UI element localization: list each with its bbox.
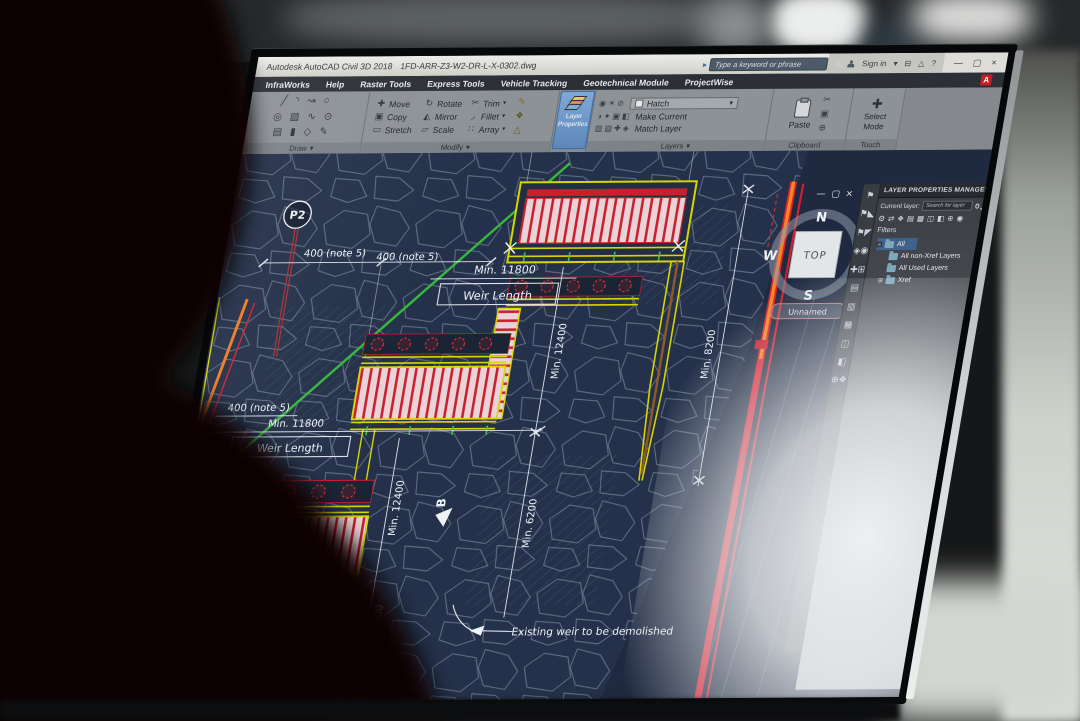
stretch-icon: ▭	[371, 124, 383, 135]
p2-marker-label: P2	[289, 209, 307, 222]
clipboard-panel-caption: Clipboard	[764, 139, 845, 150]
fillet-button[interactable]: ◞Fillet▾	[467, 110, 508, 121]
trim-button[interactable]: ✂Trim▾	[469, 97, 510, 108]
tab-infraworks[interactable]: InfraWorks	[265, 79, 311, 89]
tab-vehicle-tracking[interactable]: Vehicle Tracking	[500, 78, 568, 88]
tab-help[interactable]: Help	[325, 79, 345, 89]
paste-special-icon[interactable]: ⊕	[817, 122, 827, 133]
tab-geotechnical-module[interactable]: Geotechnical Module	[583, 77, 670, 88]
cut-icon[interactable]: ✂	[822, 94, 832, 105]
expand-icon[interactable]: ⊞	[877, 277, 883, 284]
erase-icon[interactable]: ✎	[517, 96, 527, 107]
ribbon: ╱◝↝○◎▨∿⊙▤▮◇✎ Draw▾ ✚Move ▣Copy ▭Stretch …	[242, 87, 1003, 154]
folder-icon	[886, 265, 896, 272]
search-caret-icon: ▸	[702, 60, 708, 69]
copy-icon: ▣	[373, 111, 385, 122]
filters-label: Filters	[872, 225, 979, 237]
monitor-bezel: Autodesk AutoCAD Civil 3D 2018 1FD-ARR-Z…	[140, 43, 1018, 708]
select-mode-button[interactable]: ✚ Select Mode	[851, 96, 900, 132]
photo-of-monitor: Autodesk AutoCAD Civil 3D 2018 1FD-ARR-Z…	[0, 0, 1080, 721]
layer-filter-tree: All All non-Xref Layers All Used Layers …	[864, 236, 978, 287]
folder-icon	[888, 253, 898, 260]
background-light-blob	[912, 0, 1032, 42]
section-b-label: B	[434, 498, 449, 507]
minimize-button[interactable]: —	[953, 58, 964, 68]
background-blob	[285, 0, 725, 44]
caret-down-icon: ▾	[465, 143, 470, 152]
layer-stack-icon	[566, 96, 586, 110]
app-store-icon[interactable]: ⊟	[904, 58, 912, 67]
maximize-button[interactable]: ▢	[972, 57, 982, 68]
select-mode-icon: ✚	[871, 96, 885, 112]
layers-panel: ◉☀⊘ Hatch ▾ ◑✦▣◧ Make Current ▧▨✚◈ Matc	[586, 89, 775, 152]
copy-clip-icon[interactable]: ▣	[819, 108, 829, 119]
tree-item-all[interactable]: All	[876, 238, 918, 250]
layer-tool-icons[interactable]: ▧▨✚◈	[594, 124, 632, 133]
folder-icon	[884, 241, 894, 248]
current-layer-value: Hatch	[646, 98, 670, 108]
autocad-screen: Autodesk AutoCAD Civil 3D 2018 1FD-ARR-Z…	[149, 52, 1009, 701]
dim-weir-length-b: Weir Length	[256, 442, 324, 455]
tree-node-icon	[877, 242, 883, 247]
view-label: Unnamed	[787, 308, 827, 317]
autodesk-icon[interactable]: A	[980, 74, 993, 85]
draw-panel-caption[interactable]: Draw▾	[242, 142, 361, 154]
drawing-window-controls[interactable]: — ▢ ×	[816, 189, 854, 199]
layer-search-input[interactable]	[922, 201, 974, 211]
palette-title: LAYER PROPERTIES MANAGER	[884, 186, 991, 194]
touch-panel-caption: Touch	[844, 139, 897, 150]
tree-item-xref[interactable]: ⊞ Xref	[877, 274, 971, 287]
drawing-minimize-icon: —	[816, 190, 827, 200]
dim-note400-a: 400 (note 5)	[303, 248, 367, 259]
fillet-icon: ◞	[467, 111, 479, 122]
document-name: 1FD-ARR-Z3-W2-DR-L-X-0302.dwg	[400, 60, 538, 71]
caret-down-icon[interactable]: ▾	[502, 99, 506, 106]
caret-down-icon: ▾	[309, 144, 314, 153]
close-button[interactable]: ×	[991, 57, 998, 67]
tab-express-tools[interactable]: Express Tools	[426, 78, 485, 88]
trim-icon: ✂	[469, 98, 481, 109]
dim-note400-c: 400 (note 5)	[227, 403, 291, 414]
layer-dropdown[interactable]: Hatch ▾	[629, 97, 739, 110]
mirror-icon: ◭	[421, 111, 433, 122]
tree-item-used-layers[interactable]: All Used Layers	[886, 262, 973, 275]
user-icon	[848, 60, 856, 67]
search-icon[interactable]	[975, 203, 979, 208]
dim-min11800-b: Min. 11800	[267, 419, 325, 430]
grip-point	[754, 340, 769, 349]
move-button[interactable]: ✚Move	[375, 98, 417, 109]
scale-button[interactable]: ▱Scale	[419, 124, 459, 135]
viewcube-top-label: TOP	[802, 251, 828, 262]
layer-state-icons[interactable]: ◉☀⊘	[598, 99, 626, 108]
mirror-button[interactable]: ◭Mirror	[421, 111, 461, 122]
dim-weir-length-a: Weir Length	[462, 288, 533, 302]
caret-down-icon[interactable]: ▾	[502, 125, 506, 132]
tab-raster-tools[interactable]: Raster Tools	[360, 79, 413, 89]
layer-color-swatch	[634, 99, 643, 107]
stretch-button[interactable]: ▭Stretch	[371, 124, 413, 135]
rotate-icon: ↻	[423, 98, 435, 109]
demolish-note: Existing weir to be demolished	[510, 626, 674, 639]
draw-tool-icons[interactable]: ╱◝↝○◎▨∿⊙▤▮◇✎	[267, 94, 347, 141]
folder-icon	[885, 277, 895, 284]
match-layer-button[interactable]: Match Layer	[634, 123, 682, 133]
draw-panel: ╱◝↝○◎▨∿⊙▤▮◇✎ Draw▾	[242, 91, 371, 154]
app-title: Autodesk AutoCAD Civil 3D 2018	[266, 61, 393, 72]
tree-item-non-xref[interactable]: All non-Xref Layers	[888, 250, 975, 263]
array-button[interactable]: ∷Array▾	[465, 123, 506, 134]
dim-min11800-a: Min. 11800	[473, 263, 537, 276]
scale-icon: ▱	[419, 124, 431, 135]
move-icon: ✚	[375, 98, 387, 109]
drawing-restore-icon: ▢	[831, 189, 841, 199]
help-icon[interactable]: ?	[931, 58, 937, 67]
search-icon[interactable]	[836, 61, 842, 66]
dim-note400-b: 400 (note 5)	[375, 252, 439, 263]
layer-tool-icons[interactable]: ◑✦▣◧	[596, 112, 632, 121]
make-current-button[interactable]: Make Current	[635, 111, 688, 121]
ribbon-filler	[896, 87, 1003, 150]
offset-icon[interactable]: △	[512, 124, 522, 135]
modify-panel: ✚Move ▣Copy ▭Stretch ↻Rotate ◭Mirror ▱Sc…	[360, 90, 561, 153]
explode-icon[interactable]: ❖	[515, 110, 525, 121]
caret-down-icon[interactable]: ▾	[502, 112, 506, 119]
caret-down-icon[interactable]: ▾	[893, 59, 899, 68]
current-layer-label: Current layer:	[880, 202, 921, 209]
desk-shadow	[0, 700, 900, 721]
tab-projectwise[interactable]: ProjectWise	[684, 77, 734, 87]
caret-down-icon: ▾	[685, 141, 690, 150]
palette-header[interactable]: LAYER PROPERTIES MANAGER	[879, 183, 987, 199]
clipboard-panel: Paste ✂ ▣ ⊕ Clipboard	[764, 88, 855, 151]
caret-down-icon: ▾	[729, 99, 734, 107]
palette-toolbar-icons[interactable]: ⚙⇄❖▤▦◫◧⊕◉	[874, 212, 981, 226]
copy-button[interactable]: ▣Copy	[373, 111, 415, 122]
array-icon: ∷	[465, 124, 477, 135]
clipboard-icon	[793, 99, 811, 117]
paste-button[interactable]: Paste	[788, 99, 815, 129]
keyword-search-input[interactable]	[709, 57, 829, 71]
rotate-button[interactable]: ↻Rotate	[423, 98, 463, 109]
alert-icon[interactable]: △	[918, 58, 926, 67]
sign-in-button[interactable]: Sign in	[861, 59, 887, 68]
